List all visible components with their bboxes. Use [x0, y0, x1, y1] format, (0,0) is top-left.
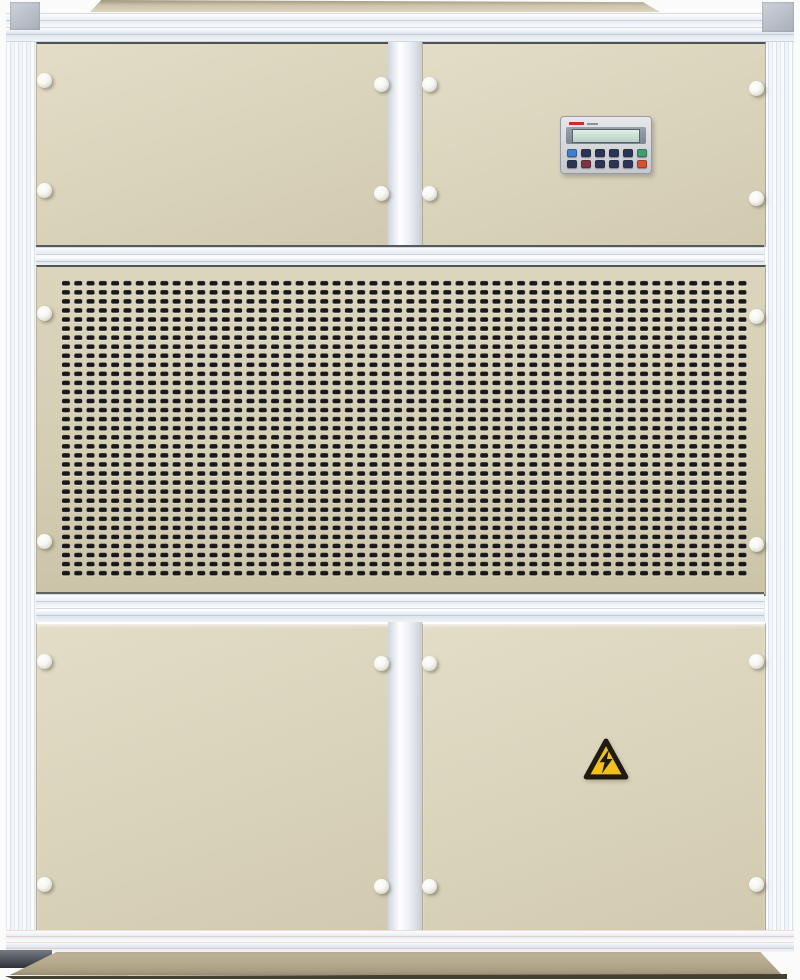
- panel-button-dark: [623, 149, 633, 157]
- fastener-knob: [749, 309, 764, 324]
- fastener-knob: [749, 654, 764, 669]
- keypad: [561, 117, 651, 173]
- unit-roof-cap: [90, 0, 660, 12]
- panel-button-dark: [595, 149, 605, 157]
- panel-button-maroon: [581, 160, 591, 168]
- fastener-knob: [37, 534, 52, 549]
- panel-button-dark: [609, 149, 619, 157]
- fastener-knob: [422, 879, 437, 894]
- panel-button-dark: [595, 160, 605, 168]
- fastener-knob: [37, 877, 52, 892]
- panel-button-dark: [623, 160, 633, 168]
- fastener-knob: [37, 306, 52, 321]
- panel-button-dark: [581, 149, 591, 157]
- frame-middle-rail-lower: [36, 592, 764, 625]
- frame-bottom-rail: [6, 930, 794, 952]
- fastener-knob: [749, 877, 764, 892]
- panel-button-blue: [567, 149, 577, 157]
- fastener-knob: [749, 537, 764, 552]
- fastener-knob: [374, 656, 389, 671]
- fastener-knob: [37, 654, 52, 669]
- base-plinth: [10, 952, 782, 975]
- fastener-knob: [422, 186, 437, 201]
- frame-top-rail: [6, 13, 794, 42]
- fastener-knob: [422, 77, 437, 92]
- panel-button-red: [637, 160, 647, 168]
- fastener-knob: [749, 81, 764, 96]
- controller-panel: [560, 116, 652, 174]
- photo-of-hvac-unit: [0, 0, 800, 980]
- lower-left-access-door: [36, 622, 390, 932]
- high-voltage-warning-icon: [583, 736, 629, 782]
- frame-left-rail: [6, 42, 36, 952]
- fastener-knob: [374, 186, 389, 201]
- upper-left-access-door: [36, 42, 390, 247]
- frame-corner-top-left: [10, 2, 40, 30]
- panel-button-green: [637, 149, 647, 157]
- frame-corner-top-right: [762, 2, 794, 32]
- upper-center-mullion: [388, 42, 422, 245]
- fastener-knob: [749, 191, 764, 206]
- fastener-knob: [374, 879, 389, 894]
- fastener-knob: [422, 656, 437, 671]
- fastener-knob: [37, 183, 52, 198]
- fastener-knob: [37, 73, 52, 88]
- fastener-knob: [374, 77, 389, 92]
- lower-center-mullion: [388, 622, 422, 930]
- panel-button-dark: [609, 160, 619, 168]
- grille-perforations: [60, 279, 748, 578]
- frame-right-rail: [764, 42, 794, 952]
- panel-button-dark: [567, 160, 577, 168]
